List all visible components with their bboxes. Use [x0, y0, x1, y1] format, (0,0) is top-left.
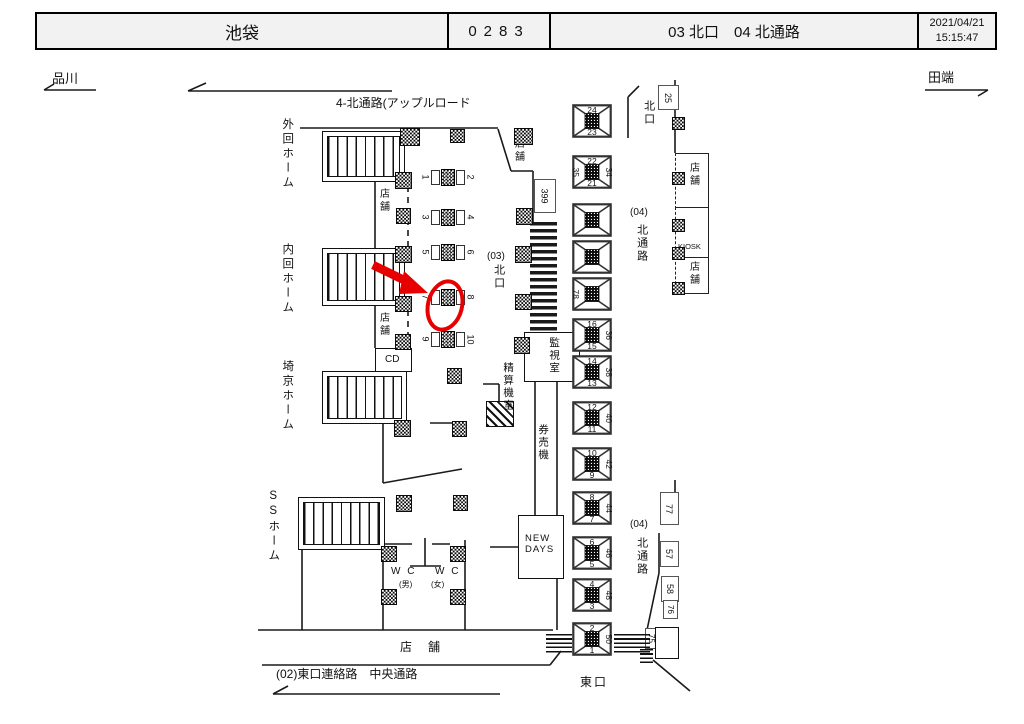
pillar	[447, 368, 462, 384]
wc-women-sub: (女)	[431, 580, 444, 589]
shop-label: 店舗	[687, 261, 699, 287]
tag-399[interactable]: 399	[534, 179, 556, 213]
stairway-box-6[interactable]: 161536	[572, 318, 612, 352]
stairway-number-right: 48	[604, 591, 613, 600]
stairway-number-top: 14	[572, 357, 612, 366]
stairway-box-4[interactable]	[572, 240, 612, 274]
pillar	[396, 208, 411, 224]
gate-unit-3-4[interactable]: 34	[421, 208, 475, 226]
gate-number: 6	[466, 248, 476, 257]
platform-inner-loop: 内回ホーム	[280, 243, 293, 316]
stairway-number-right: 34	[604, 168, 613, 177]
pillar	[381, 589, 397, 605]
stairway-number-top: 8	[572, 493, 612, 502]
gate-hatch	[441, 244, 455, 261]
stairway-box-11[interactable]: 6546	[572, 536, 612, 570]
pillar	[672, 117, 685, 130]
stairway-box-7[interactable]: 141338	[572, 355, 612, 389]
stairway-box-3[interactable]	[572, 203, 612, 237]
stairway-number-bottom: 21	[572, 179, 612, 188]
stairway-box-8[interactable]: 121140	[572, 401, 612, 435]
gate-box	[431, 170, 440, 185]
gate-number: 8	[466, 293, 476, 302]
pillar	[395, 334, 411, 350]
stairs-icon	[298, 497, 385, 550]
stairway-number-right: 38	[604, 368, 613, 377]
tag-58[interactable]: 58	[661, 576, 679, 602]
stairway-box-13[interactable]: 2150	[572, 622, 612, 656]
stairway-number-bottom: 9	[572, 471, 612, 480]
cd-label: CD	[385, 354, 399, 366]
fare-adjust-room-label: 精算機室	[502, 362, 514, 412]
north-passage-04-v: 北通路	[635, 224, 648, 263]
tag-57[interactable]: 57	[660, 541, 679, 567]
stairway-number-top: 2	[572, 624, 612, 633]
pillar	[453, 495, 468, 511]
gate-hatch	[441, 331, 455, 348]
east-stairs-box	[655, 627, 679, 659]
shop-bottom-label: 店 舗	[400, 641, 442, 655]
pillar	[450, 129, 465, 143]
platform-outer-loop: 外回ホーム	[280, 118, 293, 191]
stairway-number-bottom: 15	[572, 342, 612, 351]
pillar	[450, 546, 466, 562]
wc-men-label: W C	[391, 566, 416, 578]
gate-number: 5	[421, 248, 431, 257]
cd-box: CD	[375, 348, 412, 372]
stairway-number-left: 35	[571, 168, 580, 177]
stairway-number-bottom: 13	[572, 379, 612, 388]
stairway-number-top: 10	[572, 449, 612, 458]
north-gate-03: (03)	[487, 251, 505, 263]
gate-number: 10	[466, 335, 476, 344]
gate-box	[456, 210, 465, 225]
ticket-gates-icon	[530, 222, 557, 334]
stairway-number-bottom: 11	[572, 425, 612, 434]
stairway-number-top: 24	[572, 106, 612, 115]
stairway-number-left: 78	[571, 290, 580, 299]
pillar	[395, 172, 412, 189]
new-days-label: NEW DAYS	[525, 534, 557, 556]
stairway-number-right: 44	[604, 504, 613, 513]
pillar	[672, 247, 685, 260]
pillar	[515, 246, 532, 263]
north-gate-03-v: 北口	[492, 264, 505, 290]
stairway-number-top: 4	[572, 580, 612, 589]
stairs-ladder-icon	[546, 634, 572, 654]
passage-title: 4-北通路(アップルロード	[336, 97, 471, 111]
stairway-number-bottom: 1	[572, 646, 612, 655]
stairway-box-12[interactable]: 4348	[572, 578, 612, 612]
north-gate-label: 北口	[642, 100, 655, 126]
left-station-label: 品川	[52, 72, 78, 87]
pillar	[672, 282, 685, 295]
stairway-box-5[interactable]: 78	[572, 277, 612, 311]
monitor-room-label: 監視室	[548, 337, 560, 375]
gate-box	[431, 332, 440, 347]
pillar	[514, 128, 533, 145]
pillar	[452, 421, 467, 437]
stairway-number-right: 40	[604, 414, 613, 423]
stairway-number-bottom: 7	[572, 515, 612, 524]
gate-box	[456, 245, 465, 260]
ticket-machines-label: 券売機	[537, 424, 549, 462]
shop-label: 店舗	[377, 312, 389, 338]
tag-25[interactable]: 25	[658, 85, 679, 110]
east-link-label: (02)東口連絡路 中央通路	[276, 668, 417, 682]
gate-hatch	[441, 169, 455, 186]
gate-unit-1-2[interactable]: 12	[421, 168, 475, 186]
gate-box	[456, 170, 465, 185]
east-exit-label: 東口	[580, 676, 608, 690]
shop-label: 店舗	[687, 162, 699, 188]
pillar	[514, 337, 530, 354]
stairway-number-right: 36	[604, 331, 613, 340]
north-passage-04: (04)	[630, 519, 648, 531]
gate-hatch	[441, 209, 455, 226]
stairway-box-1[interactable]: 2423	[572, 104, 612, 138]
stairs-icon	[322, 371, 407, 424]
stairway-box-9[interactable]: 10942	[572, 447, 612, 481]
gate-number: 3	[421, 213, 431, 222]
stairway-box-10[interactable]: 8744	[572, 491, 612, 525]
platform-saikyo: 埼京ホーム	[280, 360, 293, 433]
stairway-number-top: 16	[572, 320, 612, 329]
stairway-number-bottom: 3	[572, 602, 612, 611]
stairway-number-right: 46	[604, 549, 613, 558]
shop-label: 店舗	[377, 188, 389, 214]
stairway-number-right: 42	[604, 460, 613, 469]
pillar	[396, 495, 412, 512]
wc-men-sub: (男)	[399, 580, 412, 589]
gate-number: 1	[421, 173, 431, 182]
wc-women-label: W C	[435, 566, 460, 578]
gate-unit-9-10[interactable]: 910	[421, 330, 475, 348]
right-station-label: 田端	[928, 71, 954, 86]
highlight-arrow	[370, 258, 434, 300]
pillar	[381, 546, 397, 562]
stairway-number-bottom: 23	[572, 128, 612, 137]
tag-76[interactable]: 76	[663, 600, 678, 619]
stairway-number-top: 22	[572, 157, 612, 166]
gate-box	[431, 210, 440, 225]
gate-box	[456, 332, 465, 347]
stairway-number-bottom: 5	[572, 560, 612, 569]
pillar	[672, 172, 685, 185]
stairway-number-top: 12	[572, 403, 612, 412]
pillar	[515, 294, 532, 310]
pillar	[672, 219, 685, 232]
north-passage-04: (04)	[630, 207, 648, 219]
gate-number: 9	[421, 335, 431, 344]
north-passage-04-v: 北通路	[635, 537, 648, 576]
stairs-ladder-icon	[640, 649, 653, 666]
pillar	[516, 208, 533, 225]
pillar	[450, 589, 466, 605]
new-days-box: NEW DAYS	[518, 515, 564, 579]
stairway-number-top: 6	[572, 538, 612, 547]
gate-number: 2	[466, 173, 476, 182]
tag-77[interactable]: 77	[660, 492, 679, 525]
stairway-box-2[interactable]: 22213534	[572, 155, 612, 189]
pillar	[400, 128, 420, 146]
platform-ss: SSホーム	[266, 490, 279, 564]
pillar	[394, 420, 411, 437]
gate-number: 4	[466, 213, 476, 222]
stairs-icon	[322, 131, 405, 182]
station-map-screen: 池袋 0283 03 北口 04 北通路 2021/04/21 15:15:47…	[0, 0, 1024, 724]
stairway-number-right: 50	[604, 635, 613, 644]
